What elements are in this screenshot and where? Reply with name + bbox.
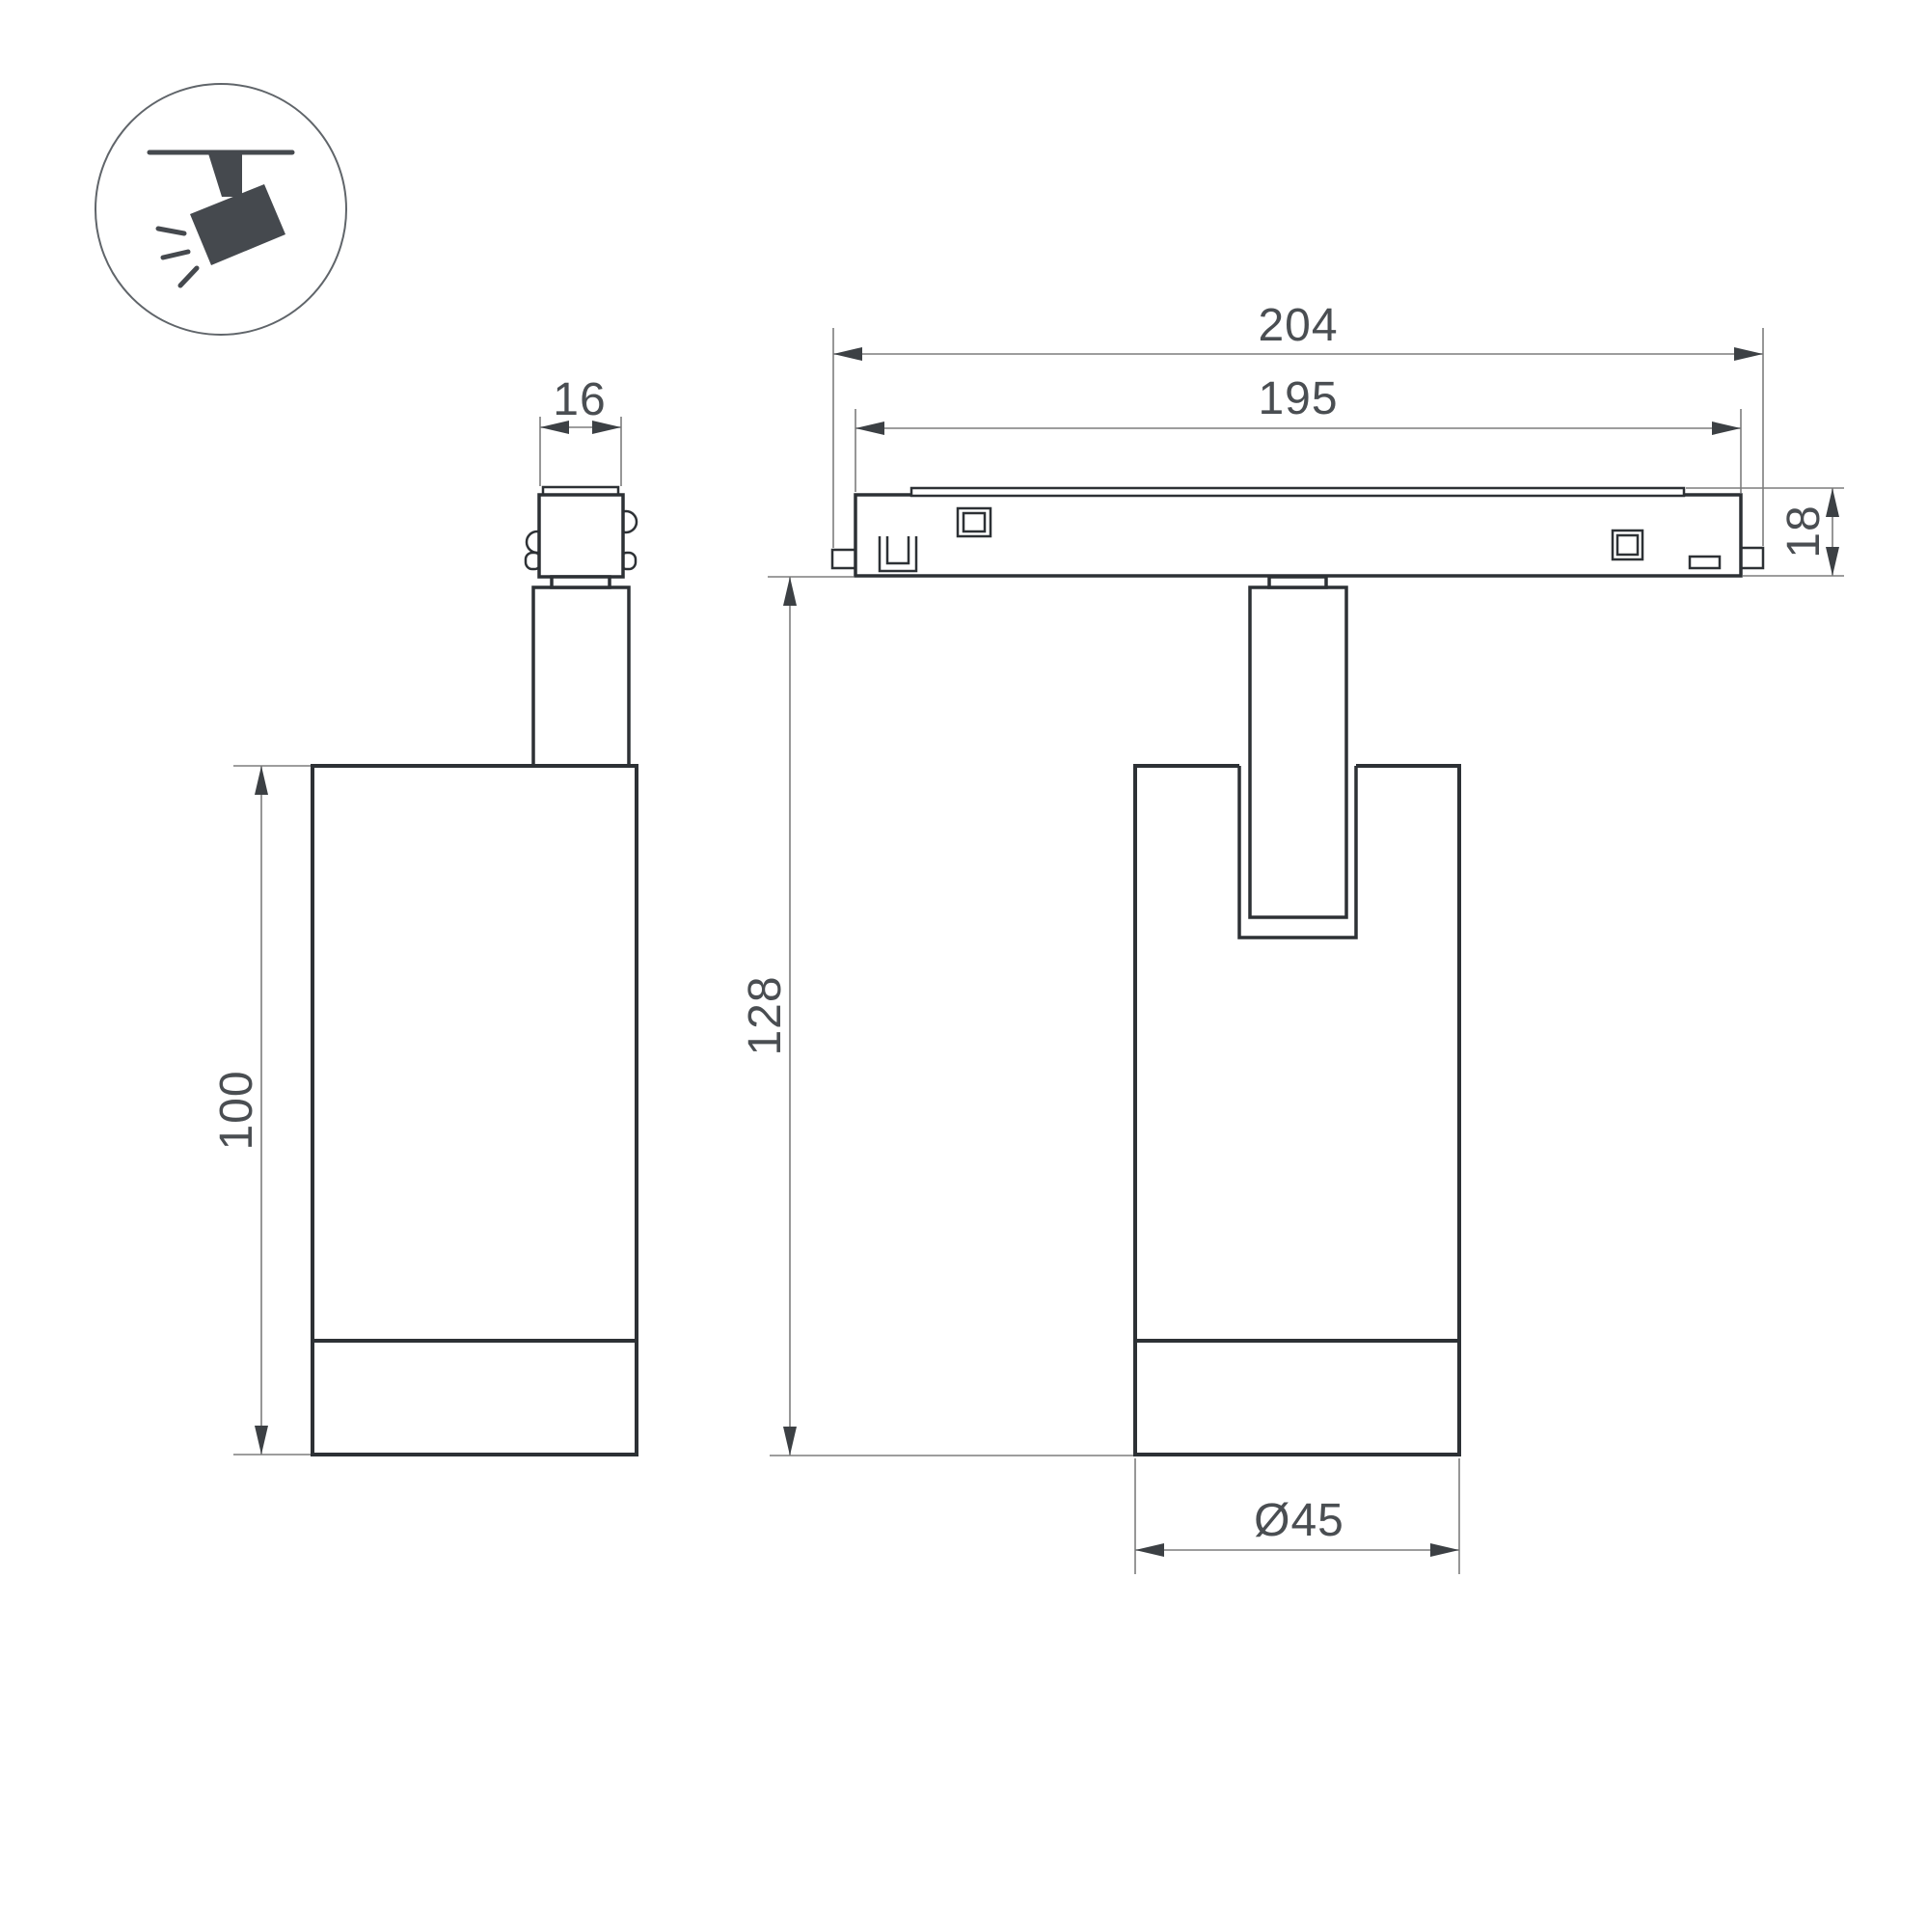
dim-label-body-diameter: Ø45 [1254, 1495, 1344, 1546]
dim-label-overall-height: 128 [740, 975, 791, 1055]
dimension-body-height: 100 [211, 766, 311, 1455]
stem-side [533, 587, 629, 766]
side-view: 16 100 [211, 374, 637, 1455]
dimension-connector-width: 16 [540, 374, 621, 486]
track-top-strip [911, 488, 1684, 496]
dimension-body-diameter: Ø45 [1135, 1458, 1459, 1574]
track-adapter [539, 495, 623, 577]
technical-drawing-canvas: 16 100 [0, 0, 1927, 1927]
stem-neck-side [552, 577, 610, 587]
stem-front [1250, 587, 1346, 917]
stem-neck-front [1269, 577, 1326, 587]
dim-label-connector-width: 16 [553, 374, 606, 425]
track-left-end-tab [832, 550, 857, 568]
dim-label-track-height: 18 [1778, 504, 1830, 558]
dim-label-track-inner-length: 195 [1258, 373, 1338, 424]
dim-label-body-height: 100 [211, 1070, 262, 1150]
dimension-overall-height: 128 [740, 577, 1133, 1456]
dimension-track-inner-length: 195 [855, 373, 1741, 493]
front-view: 204 195 18 128 [740, 300, 1844, 1574]
drawing-page: 16 100 [0, 0, 1927, 1927]
dim-label-track-length: 204 [1258, 300, 1338, 351]
lamp-body-side [312, 766, 637, 1455]
ceiling-track-spotlight-icon [95, 84, 346, 335]
